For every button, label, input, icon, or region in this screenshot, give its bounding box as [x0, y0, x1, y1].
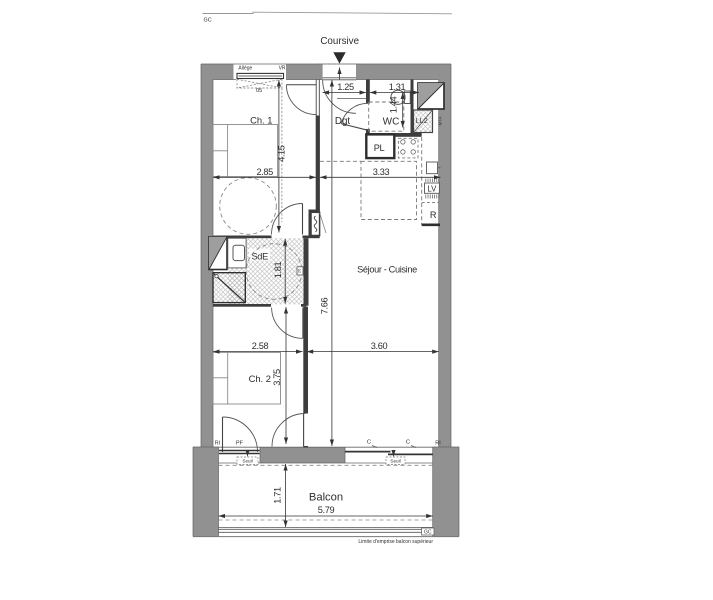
svg-text:PL: PL: [374, 143, 385, 153]
svg-text:Seuil: Seuil: [390, 459, 400, 464]
svg-text:PF: PF: [236, 441, 244, 447]
svg-text:Séjour - Cuisine: Séjour - Cuisine: [357, 264, 417, 274]
svg-text:Coursive: Coursive: [320, 36, 359, 47]
svg-text:GC: GC: [204, 18, 212, 24]
svg-text:1.44: 1.44: [389, 97, 399, 114]
svg-text:SdE: SdE: [252, 251, 269, 261]
svg-text:5.79: 5.79: [318, 505, 335, 515]
svg-text:Balcon: Balcon: [309, 491, 343, 503]
svg-text:VR: VR: [279, 65, 286, 71]
svg-text:Limite d'emprise balcon supéri: Limite d'emprise balcon supérieur: [358, 539, 433, 545]
svg-text:05: 05: [256, 88, 262, 94]
svg-text:C: C: [406, 440, 410, 446]
svg-text:3.33: 3.33: [373, 167, 390, 177]
svg-text:Allège: Allège: [238, 65, 252, 71]
svg-text:WC: WC: [383, 116, 400, 127]
svg-text:Ch. 2: Ch. 2: [249, 373, 271, 384]
svg-text:Seuil: Seuil: [242, 459, 252, 464]
svg-text:Dgt: Dgt: [335, 116, 351, 127]
svg-text:1.71: 1.71: [273, 487, 283, 504]
svg-text:26: 26: [296, 268, 301, 273]
svg-text:2.85: 2.85: [256, 167, 273, 177]
svg-text:4.15: 4.15: [277, 145, 287, 162]
svg-text:1.81: 1.81: [273, 262, 283, 279]
svg-text:1.31: 1.31: [389, 82, 406, 92]
svg-text:RI: RI: [435, 441, 440, 447]
svg-text:Ch. 1: Ch. 1: [250, 115, 272, 126]
svg-text:LL2: LL2: [416, 116, 428, 125]
svg-text:MTA: MTA: [438, 116, 443, 125]
svg-text:3.75: 3.75: [272, 369, 282, 386]
svg-text:RI: RI: [215, 441, 220, 447]
svg-text:GC: GC: [424, 530, 432, 536]
svg-text:3.60: 3.60: [371, 341, 388, 351]
svg-text:LV: LV: [427, 185, 437, 194]
svg-text:2.58: 2.58: [252, 341, 269, 351]
svg-text:1.25: 1.25: [337, 82, 354, 92]
svg-text:R: R: [430, 210, 437, 220]
svg-text:C: C: [367, 440, 371, 446]
svg-text:7.66: 7.66: [320, 298, 330, 315]
